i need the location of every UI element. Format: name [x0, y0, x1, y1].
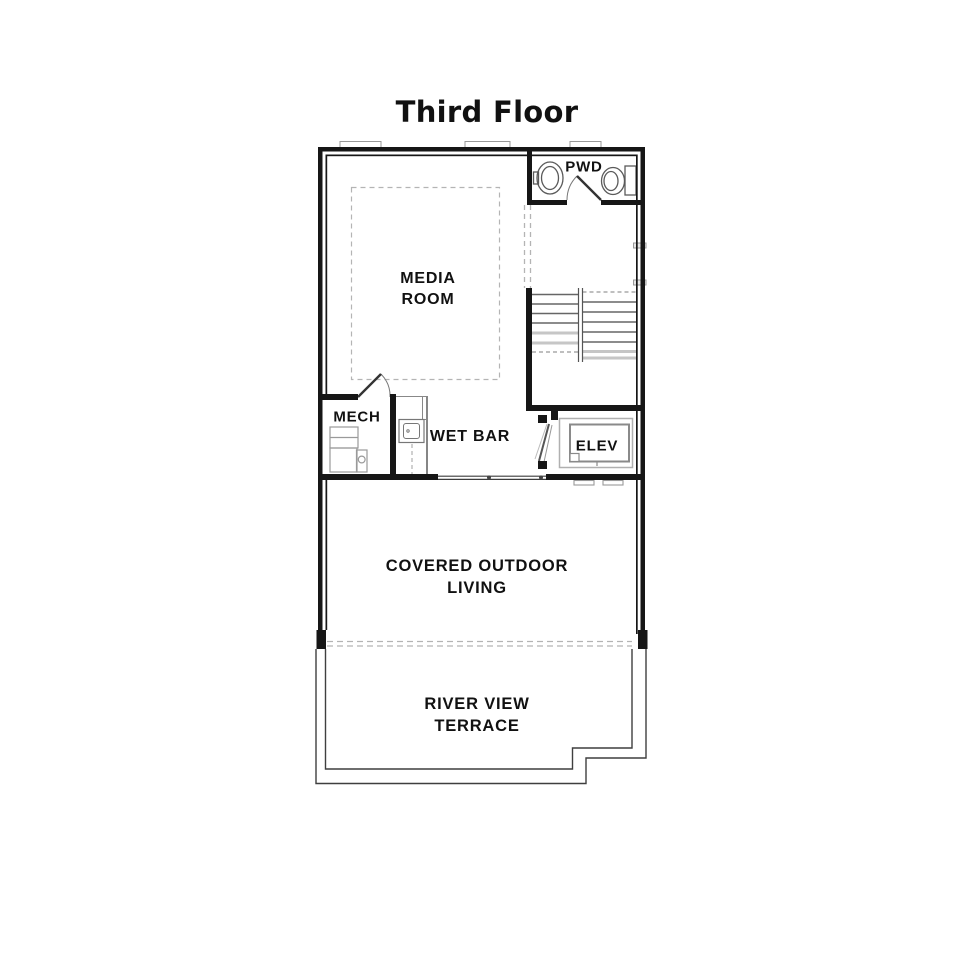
wetbar-counter-sink-icon: [396, 396, 428, 474]
stairs-icon: [532, 288, 636, 362]
room-label-media-line1: MEDIA: [400, 268, 456, 289]
pwd-toilet-icon: [602, 166, 637, 195]
room-label-river-view-terrace: RIVER VIEW TERRACE: [424, 693, 529, 737]
mech-equipment-icon: [330, 427, 367, 472]
room-label-outdoor-line2: LIVING: [386, 577, 569, 599]
room-label-media-room: MEDIA ROOM: [400, 268, 456, 310]
roof-dashed-line: [327, 642, 632, 647]
pwd-sink-icon: [534, 162, 564, 194]
sliding-door-icon: [438, 476, 546, 480]
roof-tick-icons: [340, 142, 601, 148]
room-label-outdoor-line1: COVERED OUTDOOR: [386, 555, 569, 577]
room-label-terrace-line1: RIVER VIEW: [424, 693, 529, 715]
page-title: Third Floor: [396, 95, 579, 129]
window-icons: [574, 481, 623, 486]
open-rail-dashed: [525, 205, 531, 288]
room-label-mech: MECH: [333, 409, 380, 426]
room-label-covered-outdoor-living: COVERED OUTDOOR LIVING: [386, 555, 569, 599]
room-label-media-line2: ROOM: [400, 289, 456, 310]
room-label-terrace-line2: TERRACE: [424, 715, 529, 737]
pwd-door-swing-icon: [567, 176, 601, 200]
elevator-door-icon: [535, 424, 552, 462]
room-label-pwd: PWD: [565, 159, 602, 176]
floor-plan-drawing: [0, 0, 960, 960]
mech-door-swing-icon: [358, 374, 390, 397]
room-label-elevator: ELEV: [576, 438, 618, 455]
room-label-wet-bar: WET BAR: [430, 428, 510, 446]
floor-plan-page: Third Floor PWD MEDIA ROOM MECH WET BAR …: [0, 0, 960, 960]
